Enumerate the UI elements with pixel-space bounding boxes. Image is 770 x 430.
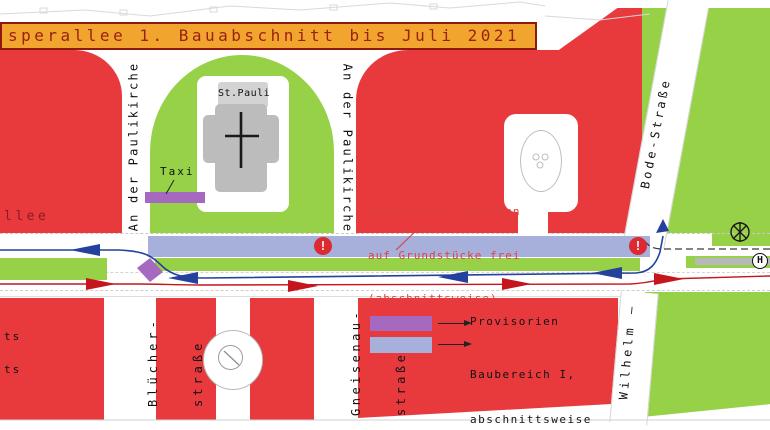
median-west [0,258,107,280]
warning-marker-west: ! [314,237,332,255]
taxi-strip [145,192,205,203]
block-top-left [0,50,122,233]
street-label-gneisenau-line1: Gneisenau- [349,300,364,416]
legend-label-baubereich: Baubereich I, abschnittsweise Sperrung [470,337,592,430]
bus-stop-badge: H [752,253,768,269]
legend: Provisorien Baubereich I, abschnittsweis… [368,314,598,389]
street-label-pauli-east: An der Paulikirche [340,61,355,237]
legend-arrow-1 [438,323,464,324]
legend-swatch-baubereich [370,337,432,353]
legend-baubereich-line2: abschnittsweise [470,412,592,427]
annotation-line3: (abschnittsweise) [368,292,520,307]
cut-label-2: ts [4,363,21,377]
construction-annotation: Baubereich,Zufahrten auf Grundstücke fre… [368,176,520,336]
church-label: St.Pauli [218,88,268,101]
title-banner: sperallee 1. Bauabschnitt bis Juli 2021 [0,22,537,50]
church-transept [203,115,279,163]
annotation-line2: auf Grundstücke frei [368,249,520,264]
cut-label-1: ts [4,330,21,344]
legend-baubereich-line1: Baubereich I, [470,367,592,382]
plaza-stem [518,205,548,235]
street-label-allee: llee [4,209,49,225]
taxi-label: Taxi [160,165,195,179]
block-center-top-extension [556,8,655,52]
construction-plan-map: sperallee 1. Bauabschnitt bis Juli 2021 … [0,0,770,430]
legend-swatch-provisorien [370,316,432,331]
legend-label-provisorien: Provisorien [470,315,559,329]
warning-marker-east: ! [629,237,647,255]
park-top-right-lower [712,233,770,246]
street-label-bluecher-line2: straße [191,307,206,407]
park-bottom-right [645,292,770,418]
legend-arrow-2 [438,344,464,345]
street-label-gneisenau: Gneisenau- straße [319,300,349,416]
street-label-pauli-west: An der Paulikirche [127,61,142,233]
annotation-line1: Baubereich,Zufahrten [368,205,520,220]
sketch-lines [0,2,650,20]
street-label-bluecher-line1: Blücher- [146,307,161,407]
block-bottom-left [0,298,104,420]
plaza-oval [520,130,562,192]
street-label-bluecher: Blücher- straße [116,307,146,407]
